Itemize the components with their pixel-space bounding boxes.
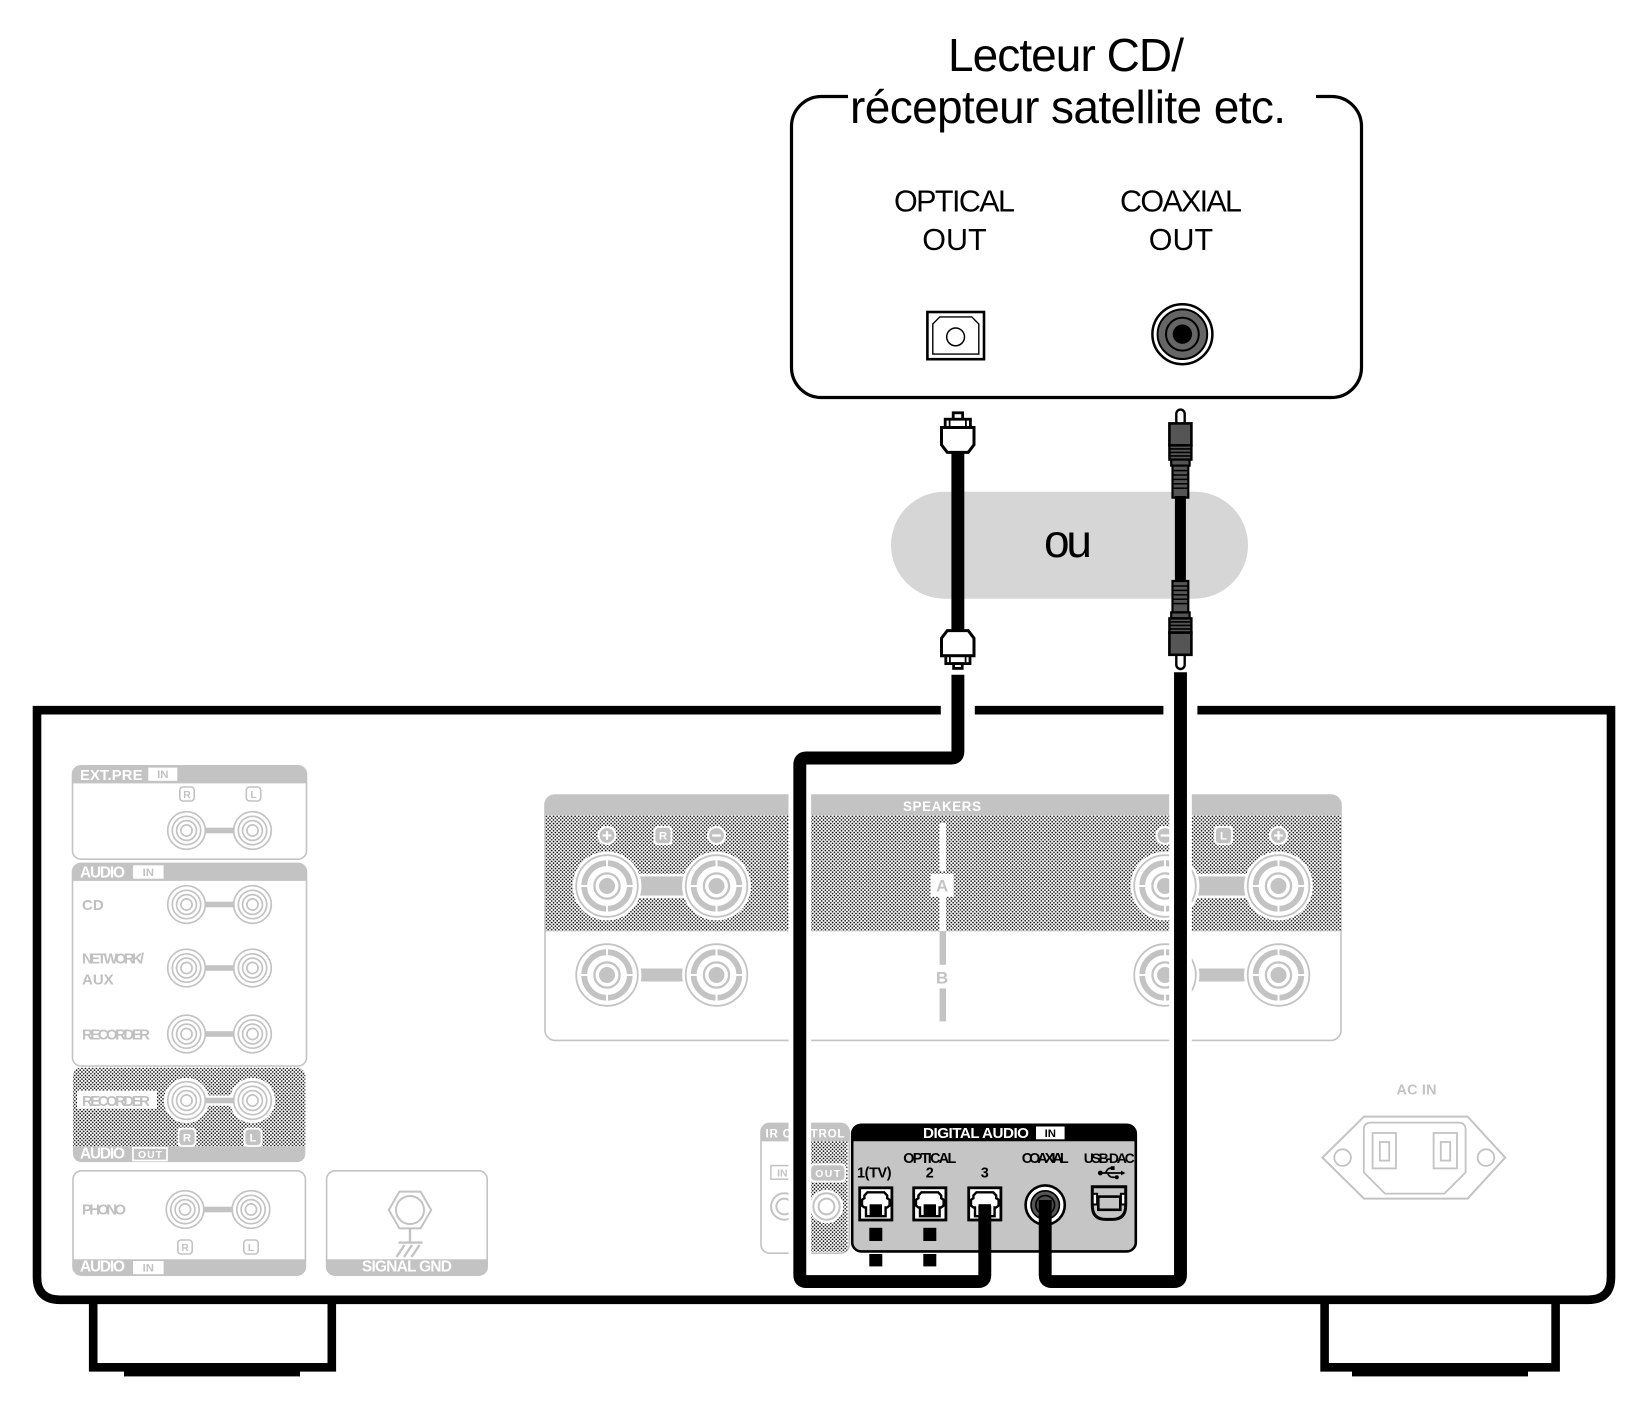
svg-text:AUX: AUX: [82, 971, 114, 988]
svg-text:A: A: [936, 876, 948, 895]
svg-text:AUDIO: AUDIO: [80, 1145, 125, 1162]
svg-text:récepteur satellite etc.: récepteur satellite etc.: [850, 81, 1286, 133]
svg-text:IN: IN: [143, 867, 154, 879]
svg-text:IN: IN: [143, 1263, 154, 1275]
svg-text:DIGITAL AUDIO: DIGITAL AUDIO: [923, 1125, 1029, 1142]
svg-text:RECORDER: RECORDER: [82, 1093, 150, 1110]
svg-text:COAXIAL: COAXIAL: [1022, 1151, 1069, 1167]
svg-text:NETWORK/: NETWORK/: [82, 950, 145, 967]
svg-text:OUT: OUT: [815, 1169, 841, 1180]
svg-text:COAXIAL: COAXIAL: [1120, 185, 1242, 219]
svg-text:B: B: [936, 968, 948, 987]
svg-text:AC IN: AC IN: [1397, 1083, 1437, 1099]
svg-text:OPTICAL: OPTICAL: [903, 1151, 956, 1167]
svg-text:USB-DAC: USB-DAC: [1084, 1150, 1135, 1166]
svg-text:IN: IN: [777, 1168, 787, 1179]
svg-text:2: 2: [926, 1166, 934, 1182]
svg-text:RECORDER: RECORDER: [82, 1027, 150, 1044]
svg-text:SIGNAL GND: SIGNAL GND: [362, 1258, 452, 1275]
svg-text:Lecteur CD/: Lecteur CD/: [948, 29, 1184, 81]
svg-text:SPEAKERS: SPEAKERS: [903, 799, 981, 814]
svg-text:OUT: OUT: [138, 1150, 163, 1161]
svg-text:IN: IN: [1045, 1128, 1056, 1140]
svg-text:ou: ou: [1044, 515, 1092, 567]
svg-text:EXT.PRE: EXT.PRE: [80, 768, 143, 784]
svg-text:IN: IN: [157, 769, 168, 781]
svg-text:OUT: OUT: [922, 223, 986, 257]
svg-text:CD: CD: [82, 897, 104, 914]
svg-text:AUDIO: AUDIO: [80, 865, 125, 882]
svg-text:AUDIO: AUDIO: [80, 1258, 125, 1275]
svg-text:PHONO: PHONO: [82, 1202, 126, 1219]
svg-text:OUT: OUT: [1149, 223, 1213, 257]
svg-text:3: 3: [981, 1166, 989, 1182]
svg-text:1(TV): 1(TV): [857, 1166, 892, 1182]
svg-text:OPTICAL: OPTICAL: [894, 185, 1015, 219]
